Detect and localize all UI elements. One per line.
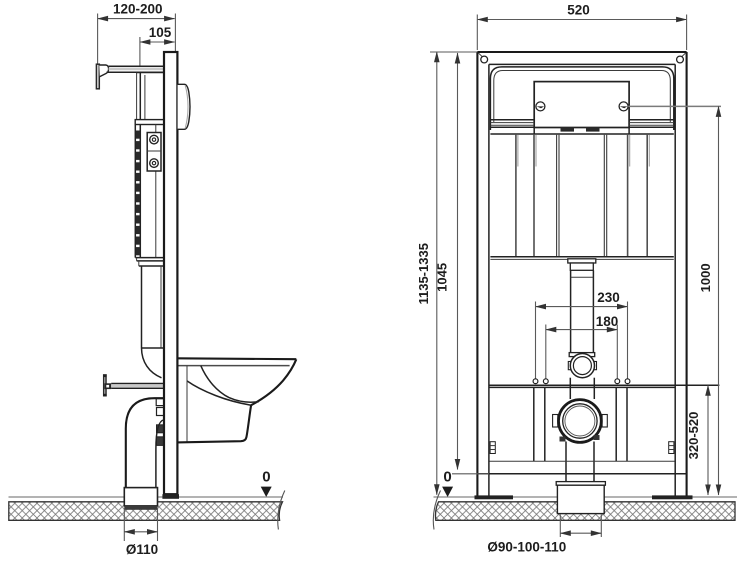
- svg-text:120-200: 120-200: [113, 2, 163, 17]
- svg-text:1000: 1000: [698, 263, 713, 292]
- svg-text:0: 0: [443, 469, 451, 486]
- svg-text:320-520: 320-520: [686, 412, 701, 460]
- svg-text:520: 520: [567, 2, 590, 17]
- svg-text:180: 180: [596, 314, 619, 329]
- svg-text:0: 0: [262, 469, 270, 486]
- svg-text:Ø110: Ø110: [126, 542, 158, 557]
- svg-text:1045: 1045: [434, 263, 449, 292]
- svg-text:1135-1335: 1135-1335: [416, 243, 431, 304]
- svg-text:105: 105: [149, 25, 172, 40]
- svg-text:230: 230: [597, 290, 620, 305]
- svg-text:Ø90-100-110: Ø90-100-110: [487, 540, 566, 555]
